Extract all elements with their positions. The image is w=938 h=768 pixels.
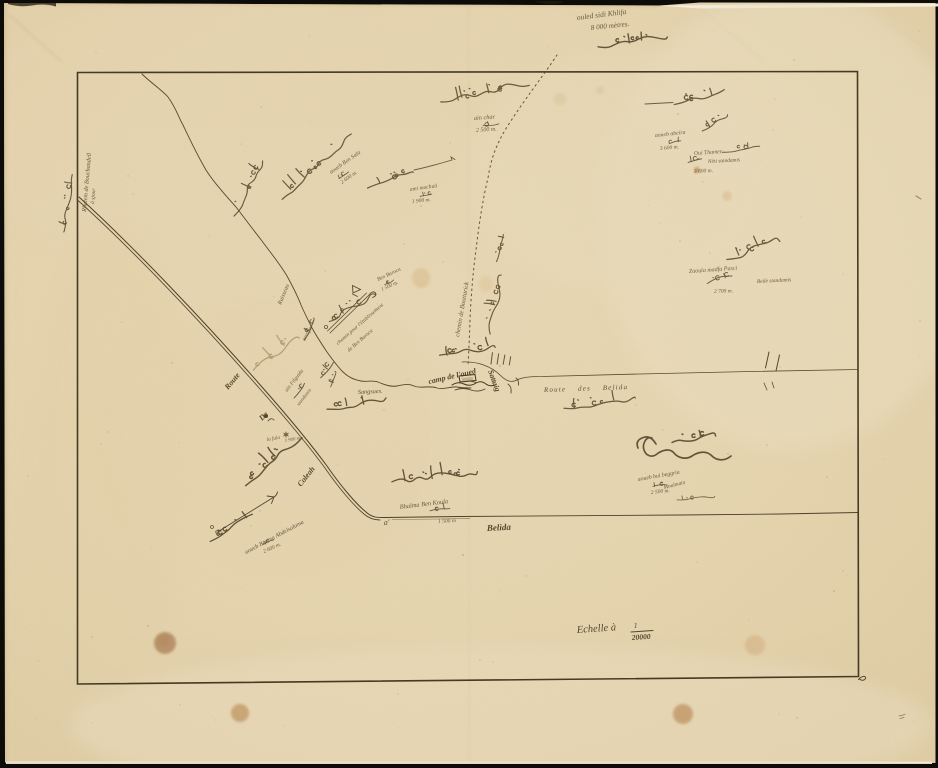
svg-text:Sangsues.: Sangsues. [358, 388, 383, 396]
svg-text:20000: 20000 [631, 632, 652, 642]
svg-text:1: 1 [634, 621, 638, 630]
svg-text:3 600 m.: 3 600 m. [693, 168, 713, 175]
svg-text:a': a' [383, 518, 390, 527]
svg-text:2 700 m.: 2 700 m. [714, 288, 733, 295]
svg-text:Belida: Belida [486, 522, 512, 533]
svg-text:1 500 m: 1 500 m [438, 518, 456, 525]
